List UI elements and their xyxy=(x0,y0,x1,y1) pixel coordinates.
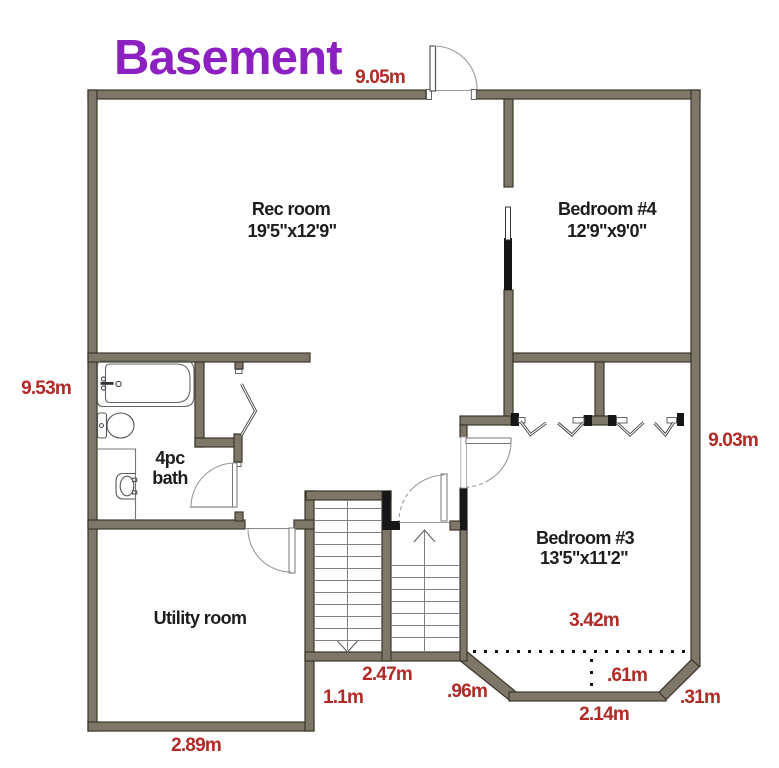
svg-text:.61m: .61m xyxy=(607,665,647,686)
svg-text:3.42m: 3.42m xyxy=(569,610,619,631)
svg-text:9.53m: 9.53m xyxy=(21,378,71,399)
svg-text:Utility room: Utility room xyxy=(154,608,247,628)
svg-text:19'5"x12'9": 19'5"x12'9" xyxy=(247,221,336,241)
svg-text:1.1m: 1.1m xyxy=(323,687,363,708)
svg-text:bath: bath xyxy=(152,468,188,488)
svg-text:12'9"x9'0": 12'9"x9'0" xyxy=(567,221,647,241)
svg-text:2.47m: 2.47m xyxy=(362,664,412,685)
svg-text:Basement: Basement xyxy=(114,31,342,85)
svg-text:4pc: 4pc xyxy=(155,448,185,468)
svg-text:.96m: .96m xyxy=(447,681,487,702)
svg-text:2.14m: 2.14m xyxy=(579,704,629,725)
svg-text:13'5"x11'2": 13'5"x11'2" xyxy=(540,548,628,568)
svg-text:Rec room: Rec room xyxy=(252,199,330,219)
svg-text:.31m: .31m xyxy=(680,687,720,708)
svg-text:Bedroom #4: Bedroom #4 xyxy=(558,199,657,219)
svg-text:9.05m: 9.05m xyxy=(355,67,405,88)
svg-text:Bedroom #3: Bedroom #3 xyxy=(536,528,635,548)
svg-text:2.89m: 2.89m xyxy=(171,735,221,756)
svg-text:9.03m: 9.03m xyxy=(708,430,758,451)
